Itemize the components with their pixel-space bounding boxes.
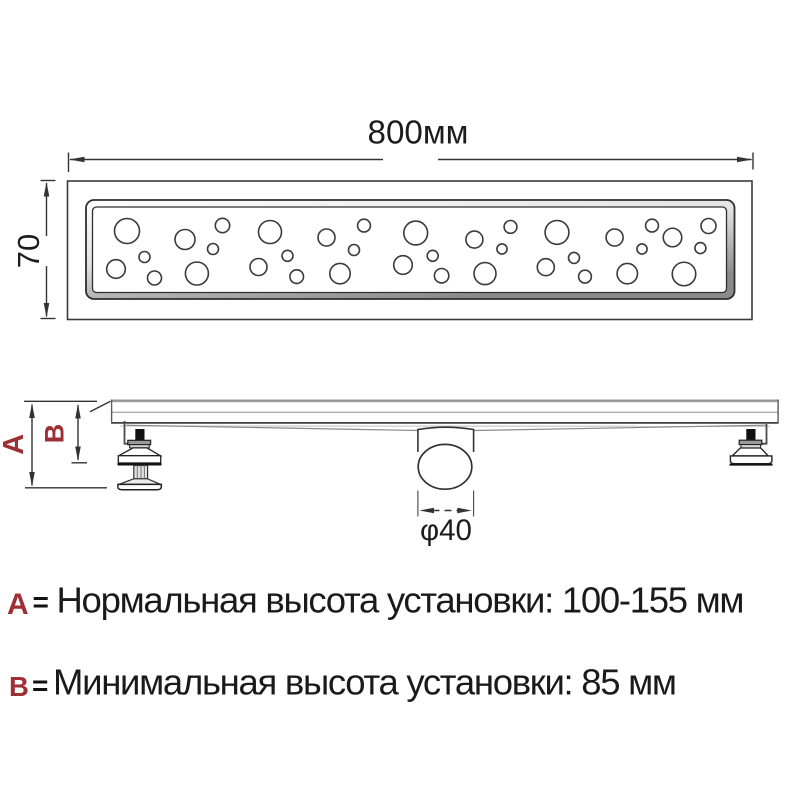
svg-text:70: 70 bbox=[11, 234, 46, 268]
svg-text:В: В bbox=[40, 424, 70, 444]
svg-text:А: А bbox=[7, 588, 29, 621]
svg-text:φ40: φ40 bbox=[420, 514, 472, 547]
svg-text:=: = bbox=[32, 670, 48, 701]
svg-text:А: А bbox=[0, 434, 30, 455]
svg-text:В: В bbox=[9, 671, 29, 702]
svg-text:Нормальная высота установки: 1: Нормальная высота установки: 100-155 мм bbox=[57, 580, 745, 621]
svg-text:Минимальная высота установки:: Минимальная высота установки: 85 мм bbox=[53, 662, 677, 703]
svg-text:800мм: 800мм bbox=[368, 114, 469, 151]
svg-text:=: = bbox=[33, 587, 49, 618]
